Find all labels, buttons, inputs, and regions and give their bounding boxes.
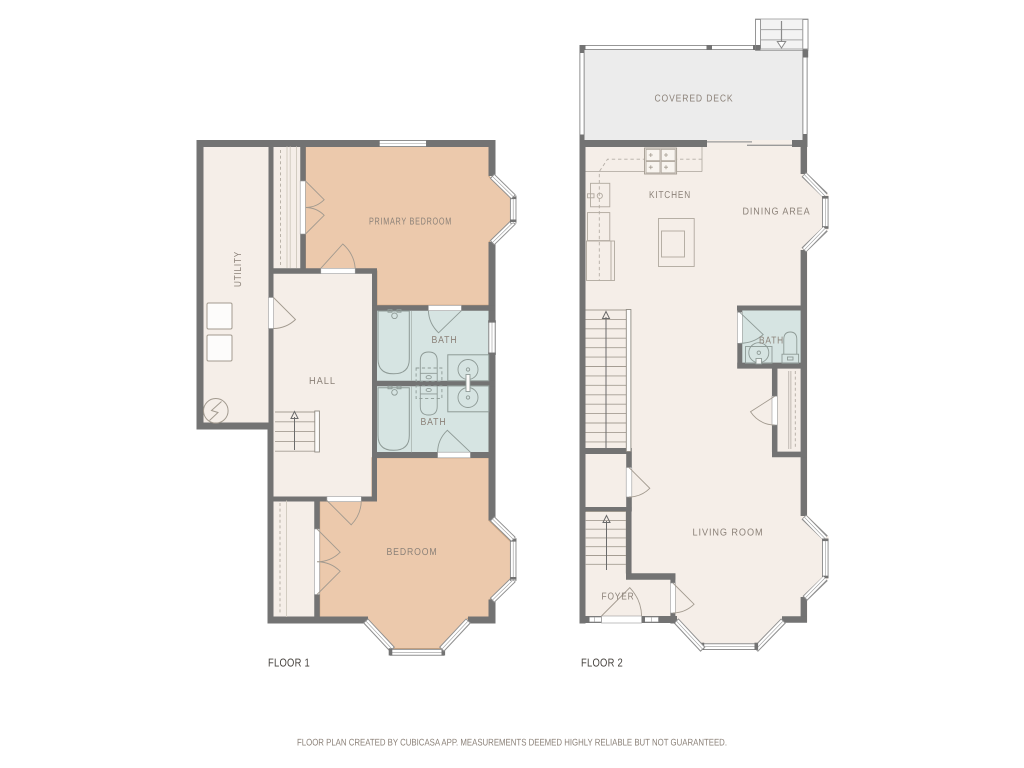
svg-text:FLOOR 1: FLOOR 1 (268, 658, 310, 670)
svg-text:UTILITY: UTILITY (233, 251, 244, 287)
svg-text:BEDROOM: BEDROOM (387, 547, 438, 558)
svg-text:HALL: HALL (309, 376, 336, 387)
svg-text:DINING AREA: DINING AREA (743, 207, 811, 218)
svg-text:KITCHEN: KITCHEN (649, 190, 691, 201)
svg-text:BATH: BATH (421, 417, 447, 428)
svg-text:FLOOR PLAN CREATED BY CUBICASA: FLOOR PLAN CREATED BY CUBICASA APP. MEAS… (297, 738, 727, 749)
svg-text:BATH: BATH (759, 336, 784, 347)
svg-text:LIVING ROOM: LIVING ROOM (693, 528, 764, 539)
svg-text:BATH: BATH (432, 335, 458, 346)
svg-text:PRIMARY BEDROOM: PRIMARY BEDROOM (369, 217, 452, 228)
svg-text:FOYER: FOYER (602, 592, 635, 603)
svg-text:FLOOR 2: FLOOR 2 (581, 658, 623, 670)
svg-text:COVERED DECK: COVERED DECK (655, 94, 734, 105)
